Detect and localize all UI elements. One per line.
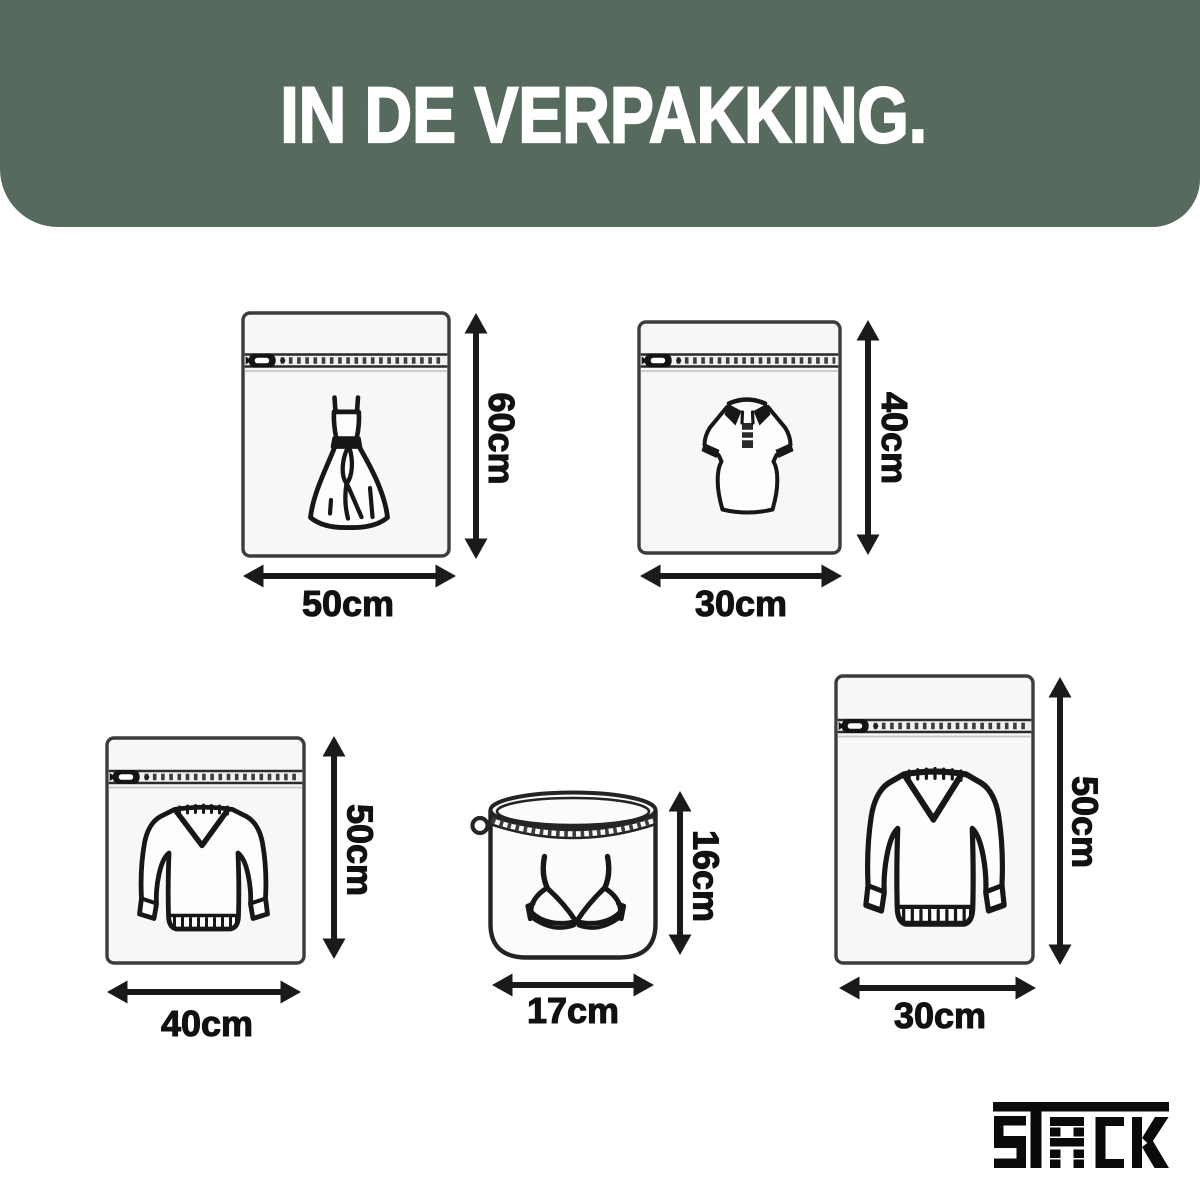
svg-text:50cm: 50cm bbox=[1064, 776, 1105, 868]
svg-text:40cm: 40cm bbox=[161, 1003, 253, 1044]
svg-text:17cm: 17cm bbox=[527, 990, 619, 1031]
svg-text:50cm: 50cm bbox=[340, 804, 381, 896]
svg-text:50cm: 50cm bbox=[302, 583, 394, 624]
svg-text:16cm: 16cm bbox=[685, 830, 726, 922]
svg-text:60cm: 60cm bbox=[481, 392, 522, 484]
svg-text:30cm: 30cm bbox=[695, 583, 787, 624]
svg-text:30cm: 30cm bbox=[894, 995, 986, 1036]
svg-text:40cm: 40cm bbox=[874, 392, 915, 484]
